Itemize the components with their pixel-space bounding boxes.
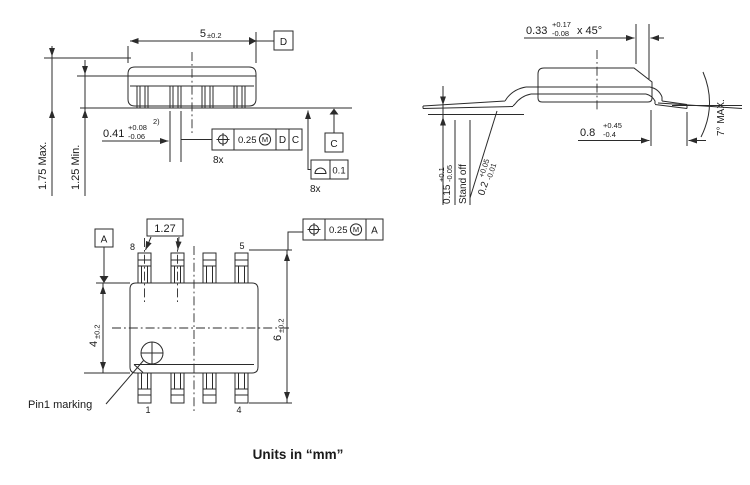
datum-a: A bbox=[95, 229, 113, 283]
dim-lead-width: 0.41 +0.08 -0.06 2) bbox=[102, 111, 212, 162]
angle-arc bbox=[701, 72, 710, 137]
dim-pitch-value: 1.27 bbox=[154, 223, 175, 235]
fcf-coplanarity: 0.1 8x bbox=[308, 111, 348, 196]
dim-chamfer-suffix: x 45° bbox=[577, 25, 602, 37]
dim-standoff-value: 0.15 bbox=[442, 184, 453, 204]
drawing-canvas: 5 ±0.2 D 1.75 Max. 1.25 Min. 0.41 +0.08 … bbox=[0, 0, 750, 485]
fcf-coplanarity-tolerance: 0.1 bbox=[332, 166, 345, 177]
datum-c: C bbox=[325, 109, 343, 153]
dim-lead-angle-label: 7° MAX. bbox=[716, 99, 727, 136]
dim-body-width-value: 4 bbox=[88, 341, 100, 347]
fcf-pin-position-datum-1: A bbox=[371, 226, 378, 237]
dim-lead-thickness-value: 0.2 bbox=[476, 180, 491, 197]
package-body-outline bbox=[538, 68, 652, 102]
mmc-modifier-label: M bbox=[262, 135, 268, 144]
datum-c-triangle bbox=[330, 109, 339, 115]
datum-d-label: D bbox=[280, 37, 287, 48]
position-symbol bbox=[308, 223, 321, 236]
datum-a-triangle bbox=[100, 276, 109, 283]
datum-c-label: C bbox=[330, 139, 337, 150]
mmc-modifier-label: M bbox=[353, 225, 359, 234]
dim-lead-angle: 7° MAX. bbox=[658, 72, 742, 137]
dim-lead-width-value: 0.41 bbox=[103, 128, 124, 140]
fcf-pin-position-tolerance: 0.25 bbox=[329, 225, 348, 236]
pin-number-4: 4 bbox=[236, 405, 241, 415]
dim-foot-length-tol-plus: +0.45 bbox=[603, 121, 622, 130]
dim-chamfer: 0.33 +0.17 -0.08 x 45° bbox=[524, 20, 664, 79]
profile-of-surface-symbol bbox=[315, 168, 326, 174]
front-view: 5 ±0.2 D 1.75 Max. 1.25 Min. 0.41 +0.08 … bbox=[37, 28, 352, 196]
dim-chamfer-tol-minus: -0.08 bbox=[552, 29, 569, 38]
fcf-lead-position-count: 8x bbox=[213, 155, 224, 166]
fcf-pin-position: 0.25 M A bbox=[288, 219, 383, 250]
dim-body-width: 4 ±0.2 bbox=[84, 283, 130, 373]
top-view-centerlines bbox=[112, 238, 290, 412]
fcf-lead-position: 0.25 M D C 8x bbox=[212, 129, 302, 166]
dim-foot-length: 0.8 +0.45 -0.4 bbox=[578, 110, 706, 146]
dim-lead-span: 6 ±0.2 bbox=[249, 250, 292, 403]
dim-standoff-label: Stand off bbox=[458, 164, 469, 204]
pin-number-5: 5 bbox=[239, 241, 244, 251]
dim-lead-width-tol-minus: -0.06 bbox=[128, 132, 145, 141]
fcf-lead-position-datum-1: D bbox=[279, 135, 286, 146]
side-view: 0.33 +0.17 -0.08 x 45° 0.8 +0.45 -0.4 7°… bbox=[423, 20, 742, 205]
position-symbol bbox=[217, 133, 230, 146]
pin-number-8: 8 bbox=[130, 242, 135, 252]
dim-standoff-tol-minus: -0.05 bbox=[445, 165, 454, 182]
dim-chamfer-value: 0.33 bbox=[526, 25, 547, 37]
dim-foot-length-value: 0.8 bbox=[580, 127, 595, 139]
fcf-lead-position-datum-2: C bbox=[292, 135, 299, 146]
dim-body-length-value: 5 bbox=[200, 28, 206, 40]
package-outline-drawing: 5 ±0.2 D 1.75 Max. 1.25 Min. 0.41 +0.08 … bbox=[0, 0, 750, 485]
dim-foot-length-tol-minus: -0.4 bbox=[603, 130, 616, 139]
datum-a-label: A bbox=[101, 235, 108, 246]
dim-body-length: 5 ±0.2 D bbox=[128, 28, 293, 63]
dim-lead-width-tol-plus: +0.08 bbox=[128, 123, 147, 132]
dim-height-max: 1.75 Max. bbox=[37, 46, 131, 196]
pin1-marking-label: Pin1 marking bbox=[28, 399, 92, 411]
dim-lead-span-value: 6 bbox=[272, 335, 284, 341]
pin-number-1: 1 bbox=[145, 405, 150, 415]
dim-lead-thickness: 0.2 +0.05 -0.01 bbox=[470, 111, 499, 198]
dim-height-min-label: 1.25 Min. bbox=[70, 145, 82, 190]
dim-chamfer-tol-plus: +0.17 bbox=[552, 20, 571, 29]
datum-d-triangle bbox=[249, 37, 257, 45]
dim-lead-width-note: 2) bbox=[153, 117, 160, 126]
top-view: 8 5 1 4 1.27 A 4 ±0.2 bbox=[28, 219, 383, 415]
pin1-marking: Pin1 marking bbox=[28, 342, 163, 411]
dim-lead-span-tol: ±0.2 bbox=[277, 318, 286, 333]
dim-body-length-tol: ±0.2 bbox=[207, 31, 222, 40]
units-note: Units in “mm” bbox=[253, 447, 344, 462]
lead-profile bbox=[423, 87, 687, 109]
package-leads bbox=[137, 86, 245, 108]
dim-height-max-label: 1.75 Max. bbox=[37, 142, 49, 190]
fcf-coplanarity-count: 8x bbox=[310, 184, 321, 195]
dim-body-width-tol: ±0.2 bbox=[93, 324, 102, 339]
fcf-lead-position-tolerance: 0.25 bbox=[238, 135, 257, 146]
